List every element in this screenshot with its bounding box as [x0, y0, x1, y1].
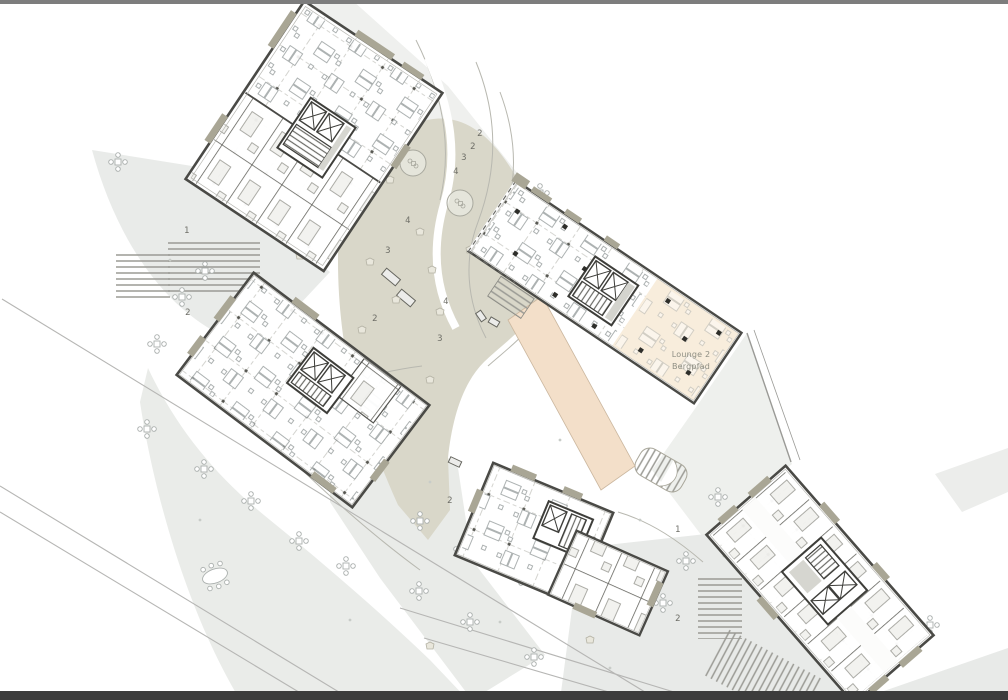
site-plan-canvas: Lounge 2 Bergpfad 12223443423212 [0, 0, 1008, 700]
tree [447, 190, 473, 216]
lounge-label-line1: Lounge 2 [652, 349, 730, 361]
lounge-label-line2: Bergpfad [652, 361, 730, 373]
path-east-band [935, 448, 1008, 512]
building-lounge [450, 172, 745, 425]
ramp-steps-southeast [698, 577, 742, 639]
bottom-border [0, 691, 1008, 700]
top-border [0, 0, 1008, 4]
site-plan-svg [0, 0, 1008, 700]
lounge-label: Lounge 2 Bergpfad [652, 349, 730, 372]
